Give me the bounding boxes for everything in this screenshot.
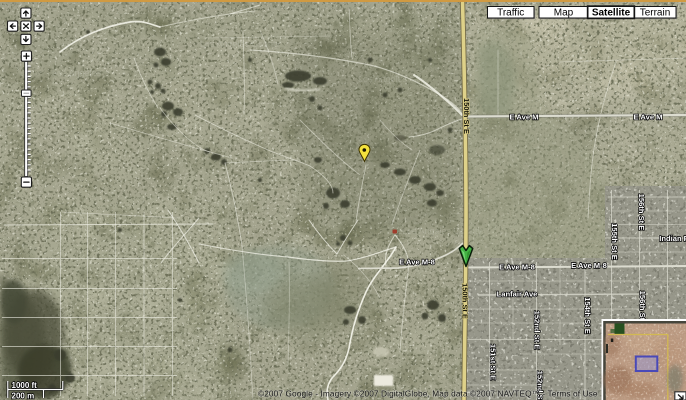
svg-text:200 m: 200 m xyxy=(12,391,35,400)
svg-text:154th St E: 154th St E xyxy=(583,297,592,334)
svg-text:Traffic: Traffic xyxy=(497,8,524,19)
svg-text:©2007 Google - Imagery ©2007 D: ©2007 Google - Imagery ©2007 DigitalGlob… xyxy=(258,389,598,399)
svg-text:E Ave M-8: E Ave M-8 xyxy=(399,258,435,267)
svg-text:Terrain: Terrain xyxy=(640,8,671,19)
svg-text:1000 ft: 1000 ft xyxy=(12,381,38,390)
svg-text:E Ave M: E Ave M xyxy=(634,113,663,122)
svg-text:151st St E: 151st St E xyxy=(489,344,498,380)
svg-text:Map: Map xyxy=(554,8,574,19)
svg-text:152nd St E: 152nd St E xyxy=(533,311,542,350)
svg-text:Lanfair Ave: Lanfair Ave xyxy=(497,290,538,299)
svg-text:Los Angeles: Los Angeles xyxy=(358,74,408,84)
svg-text:E Ave M-8: E Ave M-8 xyxy=(571,261,607,270)
svg-text:Indian P: Indian P xyxy=(659,234,686,243)
svg-text:Los Angeles: Los Angeles xyxy=(52,68,102,78)
svg-text:Los Angeles County: Los Angeles County xyxy=(200,39,281,49)
svg-text:156th St E: 156th St E xyxy=(637,194,646,231)
svg-text:E Ave M: E Ave M xyxy=(510,113,539,122)
svg-text:155th St E: 155th St E xyxy=(610,223,619,260)
svg-text:150th St E: 150th St E xyxy=(462,98,471,134)
svg-text:150th St E: 150th St E xyxy=(461,283,470,319)
svg-text:Satellite: Satellite xyxy=(592,8,631,19)
svg-text:E Ave M-8: E Ave M-8 xyxy=(499,263,535,272)
svg-text:Los Angeles County: Los Angeles County xyxy=(402,226,483,236)
